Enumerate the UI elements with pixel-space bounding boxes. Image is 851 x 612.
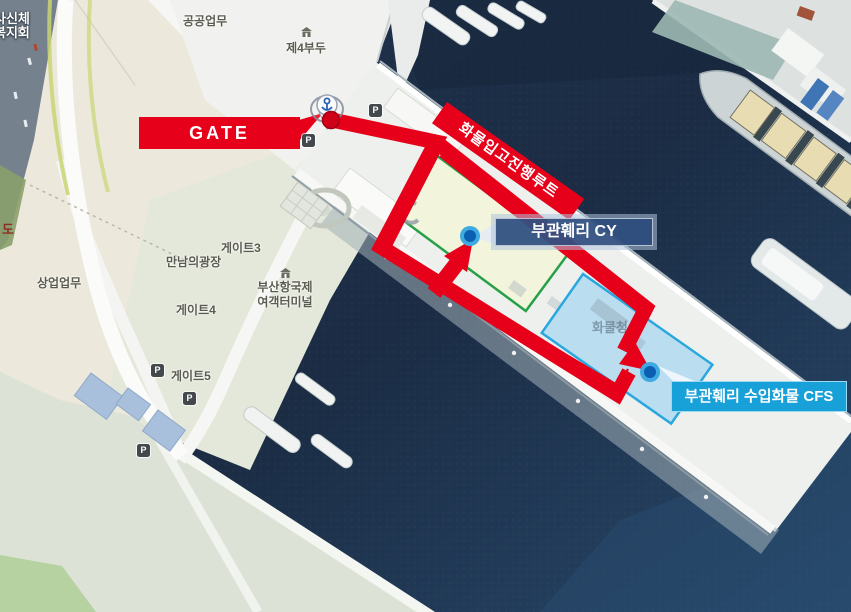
parking-icon: P — [183, 392, 196, 405]
label-gate4: 게이트4 — [176, 301, 216, 318]
cfs-callout: 부관훼리 수입화물 CFS — [671, 381, 847, 412]
label-commercial-zone: 상업업무 — [37, 274, 81, 291]
route-start-marker — [323, 112, 340, 129]
port-route-map: 화물청사 — [0, 0, 851, 612]
cy-callout: 부관훼리 CY — [491, 214, 657, 250]
parking-icon: P — [137, 444, 150, 457]
gate-callout: GATE — [139, 117, 300, 149]
label-passenger-terminal: 부산항국제 여객터미널 — [240, 268, 330, 310]
terminal-building-icon — [280, 268, 291, 279]
label-gate3: 게이트3 — [221, 239, 261, 256]
cy-callout-label: 부관훼리 CY — [495, 218, 653, 246]
satellite-base-map: 화물청사 — [0, 0, 851, 612]
cfs-marker — [640, 362, 660, 382]
label-gate5: 게이트5 — [171, 367, 211, 384]
parking-icon: P — [369, 104, 382, 117]
terminal-building-icon — [301, 27, 312, 38]
label-pier4: 제4부두 — [278, 27, 334, 56]
label-public-zone: 공공업무 — [183, 12, 227, 29]
label-road-fragment: 도 — [2, 219, 14, 238]
cy-marker — [460, 226, 480, 246]
parking-icon: P — [151, 364, 164, 377]
label-corner-welfare: 사신체 복지회 — [0, 12, 30, 40]
label-meeting-plaza: 만남의광장 — [166, 253, 221, 270]
parking-icon: P — [302, 134, 315, 147]
